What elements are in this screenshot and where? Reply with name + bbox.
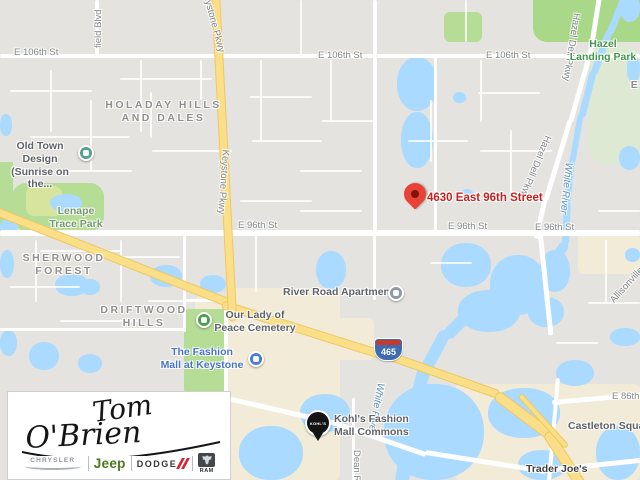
label-hazel-landing-park: Hazel Landing Park	[548, 38, 640, 65]
poi-label-kohls-fashion-mall-commons: Kohl's Fashion Mall Commons	[334, 413, 409, 439]
dealer-logo: Tom O'Brien CHRYSLER Jeep DODGE RAM	[7, 391, 231, 480]
dodge-logo: DODGE	[137, 458, 188, 469]
label-sherwood-forest: SHERWOOD FOREST	[16, 252, 112, 279]
label-el: EL	[620, 79, 640, 92]
label-hazel-dell-pkwy: Hazel Dell Pkwy	[515, 133, 553, 201]
script-obrien: O'Brien	[25, 415, 143, 456]
destination-address-label: 4630 East 96th Street	[427, 192, 543, 204]
river-road-apartments-marker-icon[interactable]	[388, 285, 404, 301]
map-canvas[interactable]: 465 E 106th StE 106th StE 106th StE 96th…	[0, 0, 640, 480]
label-e-106th-st-right: E 106th St	[486, 50, 530, 62]
ram-logo: RAM	[198, 453, 215, 474]
poi-label-castleton-square: Castleton Square	[568, 420, 640, 433]
fashion-mall-marker-icon[interactable]	[248, 351, 264, 367]
ram-head-icon	[198, 453, 215, 467]
label-e-86th-st: E 86th St	[612, 391, 640, 403]
brand-divider	[192, 456, 193, 471]
ram-wordmark: RAM	[200, 468, 214, 474]
jeep-logo: Jeep	[94, 456, 126, 471]
label-field-blvd: field Blvd	[93, 9, 105, 48]
poi-label-old-town-design: Old Town Design (Sunrise on the...	[0, 140, 80, 191]
brand-row: CHRYSLER Jeep DODGE RAM	[8, 453, 230, 474]
kohls-badge-text: KOHL'S	[307, 421, 329, 426]
poi-label-fashion-mall: The Fashion Mall at Keystone	[158, 346, 246, 372]
label-e-96th-st-left: E 96th St	[238, 220, 277, 232]
brand-divider	[131, 456, 132, 471]
label-e-96th-st-mid: E 96th St	[448, 221, 487, 233]
chrysler-logo: CHRYSLER	[23, 457, 83, 470]
poi-label-river-road-apartments: River Road Apartments	[283, 286, 399, 299]
label-e-106th-st-left: E 106th St	[14, 47, 58, 59]
label-e-96th-st-right: E 96th St	[535, 222, 574, 234]
label-keystone-pkwy-top: Keystone Pkwy	[198, 0, 227, 54]
label-lenape-trace-park: Lenape Trace Park	[40, 205, 112, 232]
label-dean-rd: Dean Rd	[350, 450, 362, 480]
label-driftwood-hills: DRIFTWOOD HILLS	[92, 304, 196, 331]
label-keystone-pkwy: Keystone Pkwy	[214, 149, 231, 215]
label-white-river-top: White River	[556, 162, 574, 215]
poi-label-trader-joes: Trader Joe's	[526, 463, 587, 476]
tom-obrien-script: Tom O'Brien	[8, 394, 230, 456]
old-town-design-marker-icon[interactable]	[78, 145, 94, 161]
kohls-marker-icon[interactable]: KOHL'S	[305, 410, 331, 436]
label-allisonville-rd: Allisonville Rd	[608, 254, 640, 306]
dodge-wordmark: DODGE	[137, 459, 178, 469]
our-lady-of-peace-marker-icon[interactable]	[196, 312, 212, 328]
chrysler-wing-icon	[25, 463, 81, 470]
poi-label-our-lady-of-peace: Our Lady of Peace Cemetery	[210, 309, 300, 335]
label-e-106th-st-mid: E 106th St	[318, 50, 362, 62]
label-holaday-hills-and-dales: HOLADAY HILLS AND DALES	[86, 99, 241, 126]
brand-divider	[88, 456, 89, 471]
